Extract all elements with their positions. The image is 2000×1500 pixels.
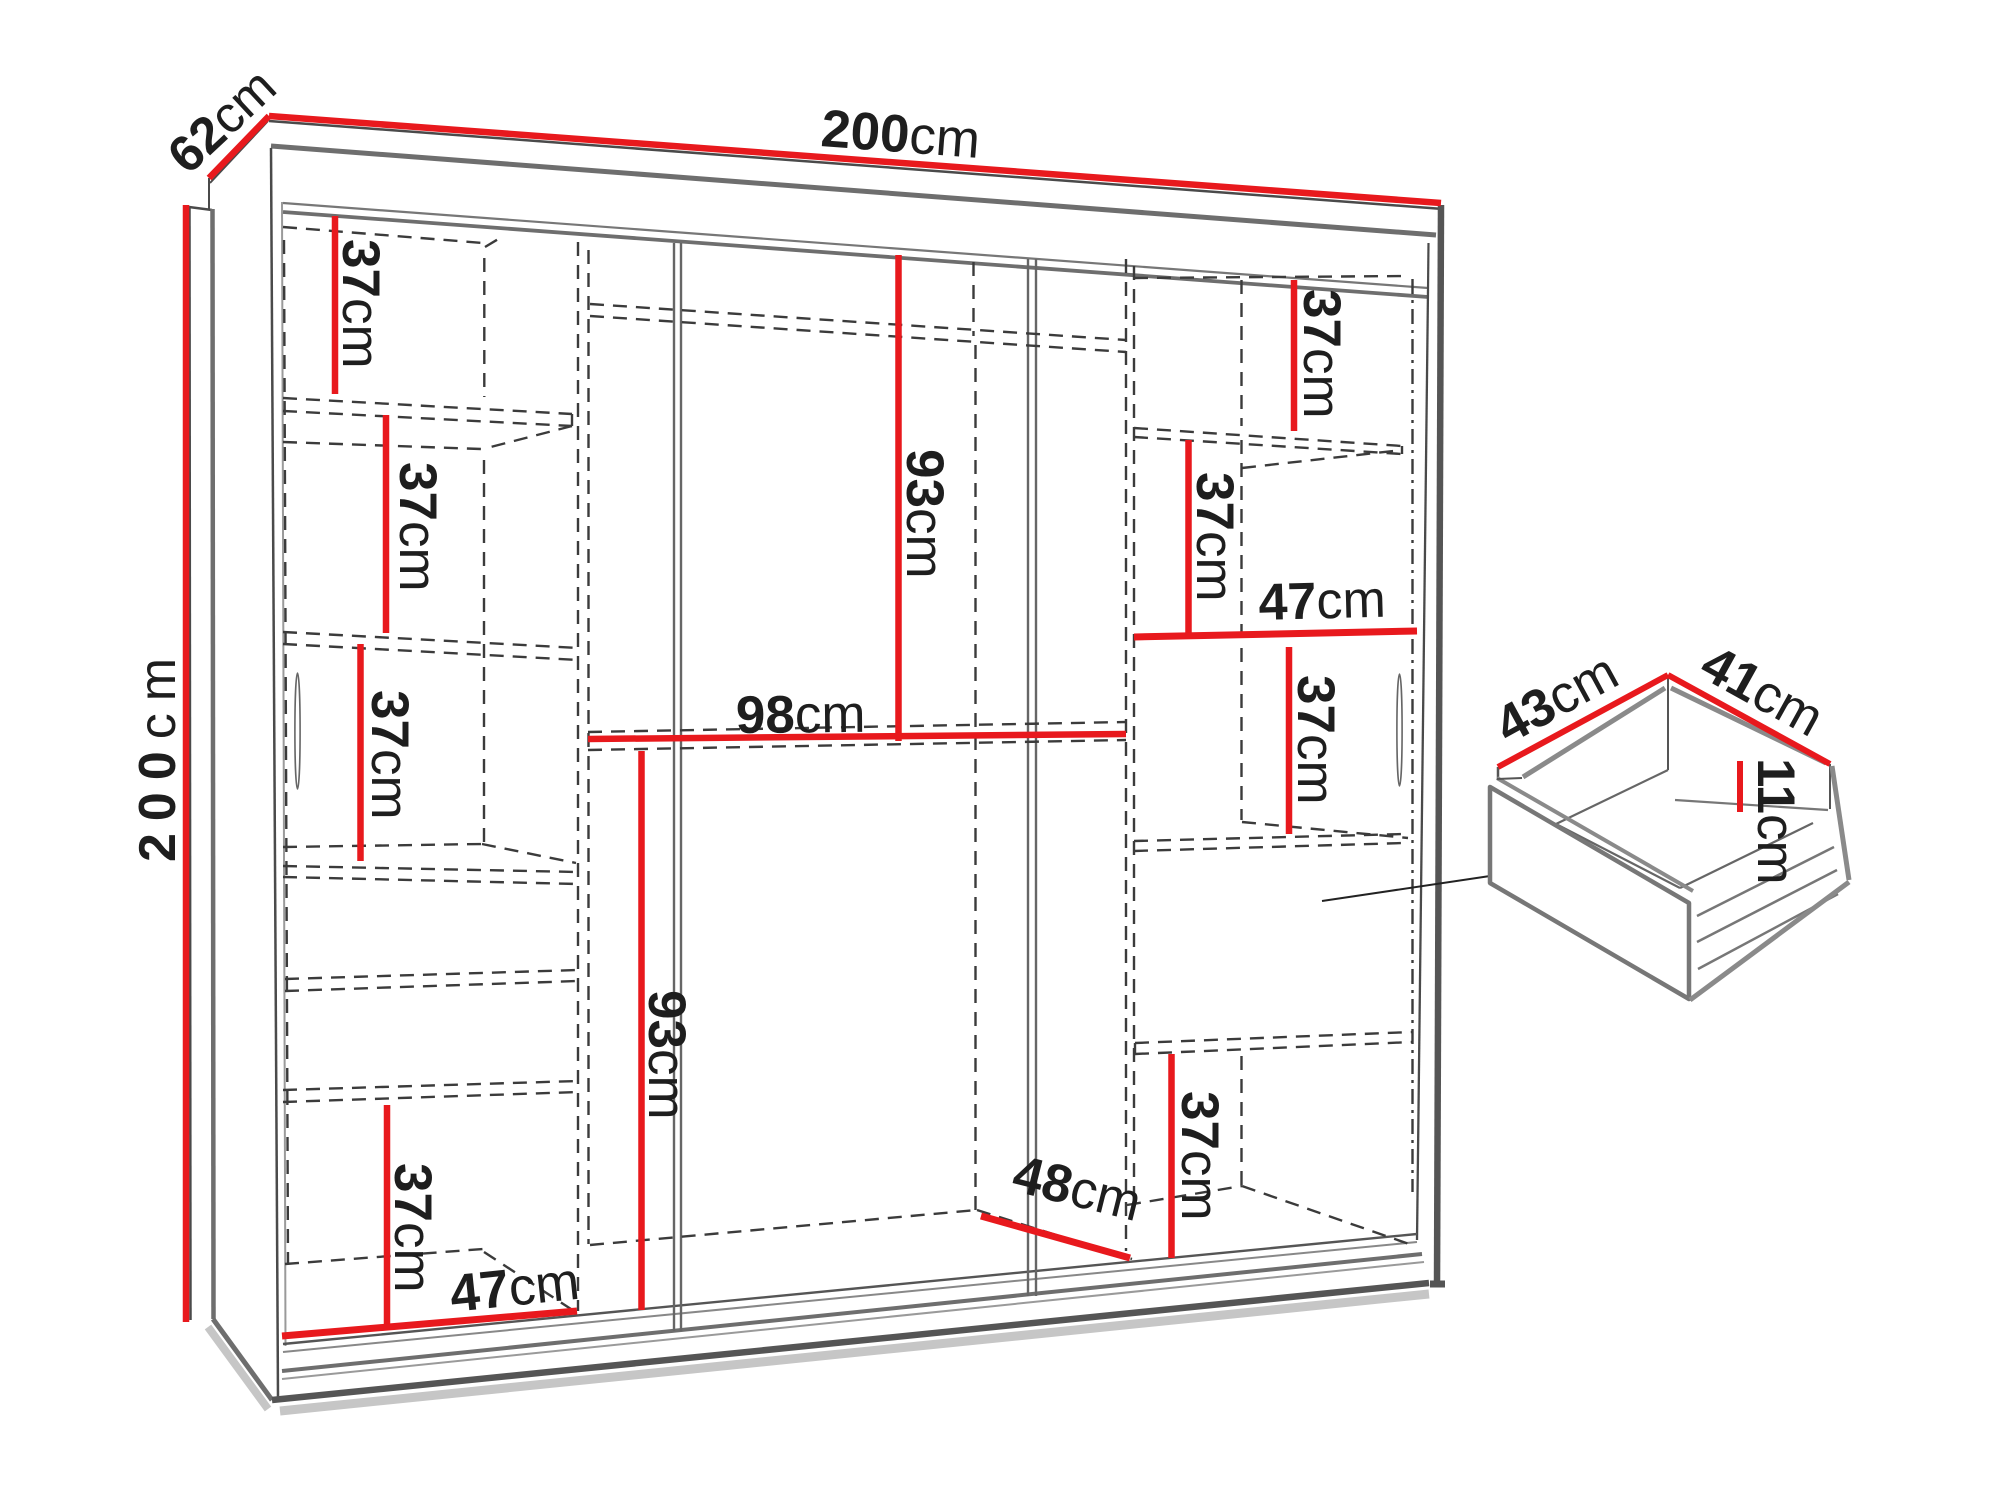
svg-text:37cm: 37cm (388, 462, 447, 592)
svg-text:98cm: 98cm (736, 685, 866, 745)
svg-text:37cm: 37cm (1170, 1091, 1229, 1221)
svg-text:200cm: 200cm (129, 646, 187, 862)
svg-text:37cm: 37cm (383, 1163, 442, 1293)
svg-text:37cm: 37cm (1292, 289, 1351, 419)
svg-text:93cm: 93cm (637, 990, 696, 1120)
svg-text:37cm: 37cm (360, 690, 419, 820)
svg-text:37cm: 37cm (331, 239, 390, 369)
svg-text:93cm: 93cm (895, 449, 954, 579)
svg-text:11cm: 11cm (1746, 758, 1805, 885)
svg-text:47cm: 47cm (1258, 571, 1387, 632)
svg-text:37cm: 37cm (1185, 472, 1244, 602)
svg-text:200cm: 200cm (819, 99, 982, 170)
svg-text:37cm: 37cm (1286, 675, 1345, 805)
